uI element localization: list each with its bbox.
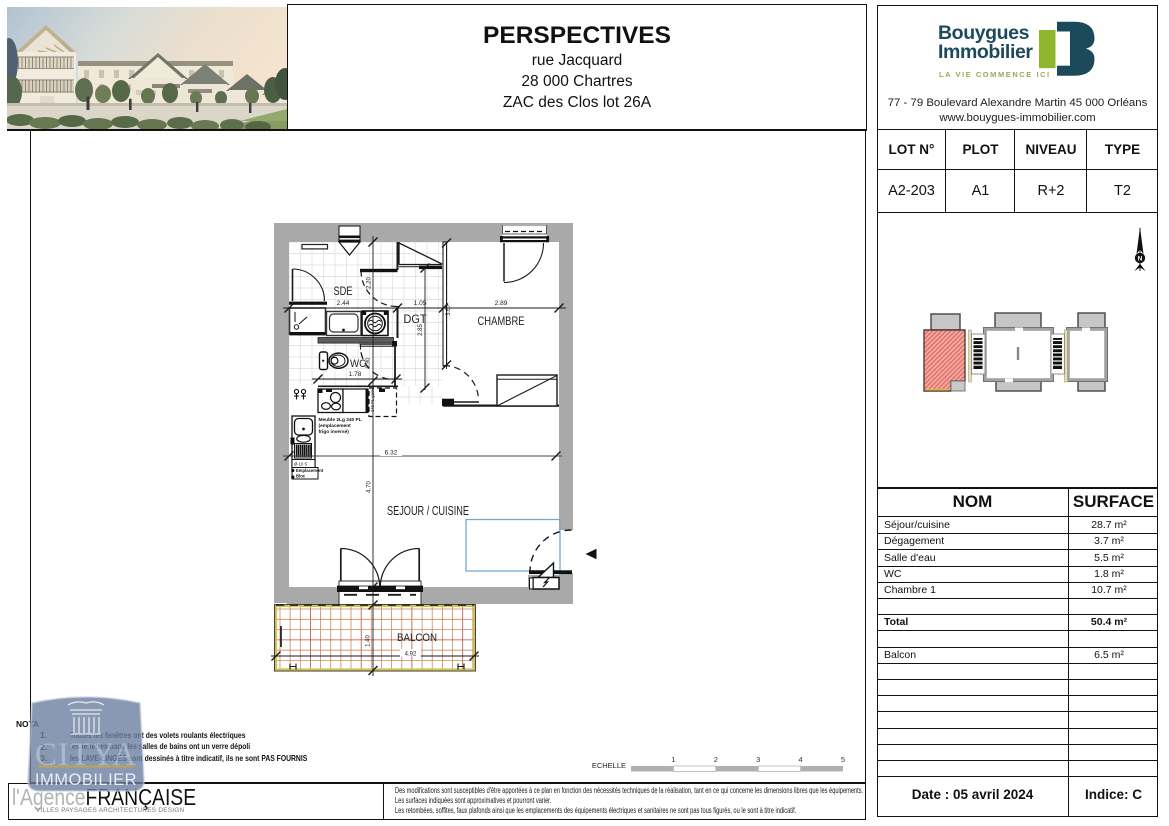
- svg-text:IMMOBILIER: IMMOBILIER: [35, 771, 137, 789]
- svg-text:CITYA: CITYA: [35, 737, 137, 773]
